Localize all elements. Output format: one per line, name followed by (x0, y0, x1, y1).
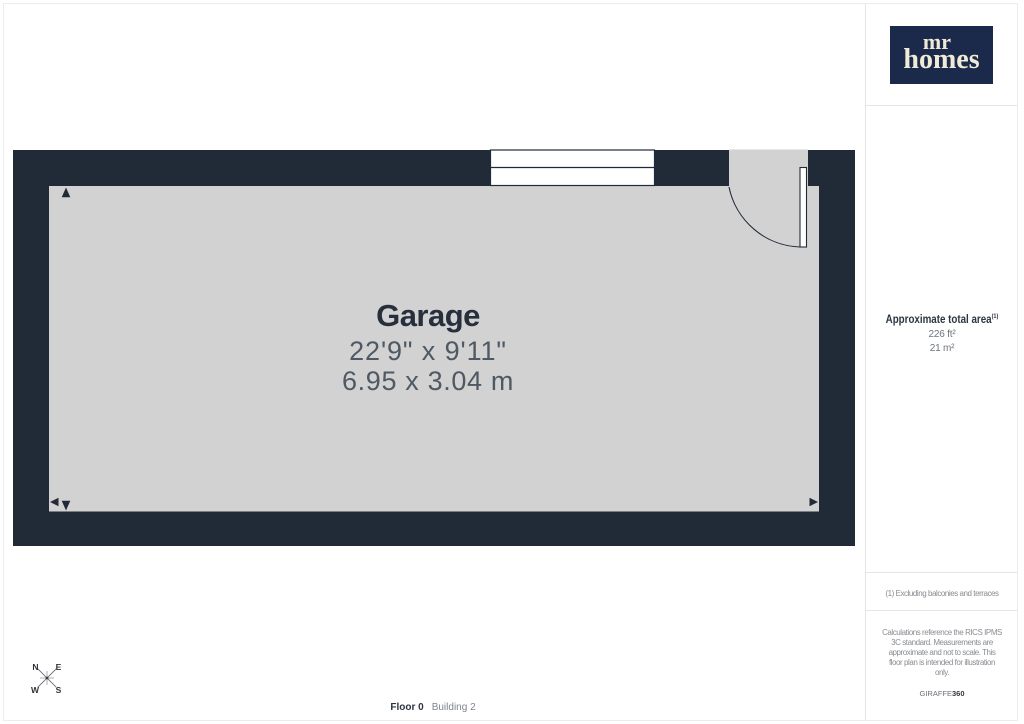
svg-text:S: S (56, 685, 62, 695)
svg-text:N: N (32, 662, 38, 672)
svg-text:E: E (56, 662, 62, 672)
svg-text:W: W (31, 685, 40, 695)
